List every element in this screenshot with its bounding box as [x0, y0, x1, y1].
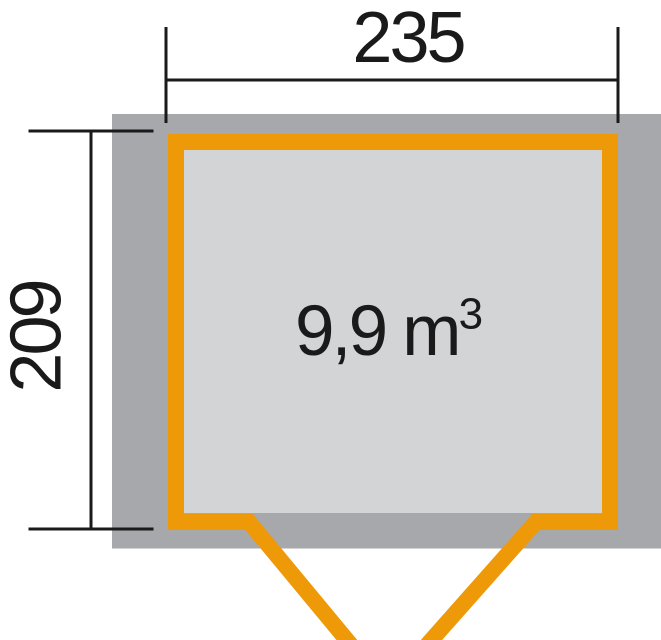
- svg-text:235: 235: [352, 0, 464, 78]
- svg-text:209: 209: [0, 281, 77, 392]
- svg-text:9,9 m3: 9,9 m3: [295, 290, 482, 372]
